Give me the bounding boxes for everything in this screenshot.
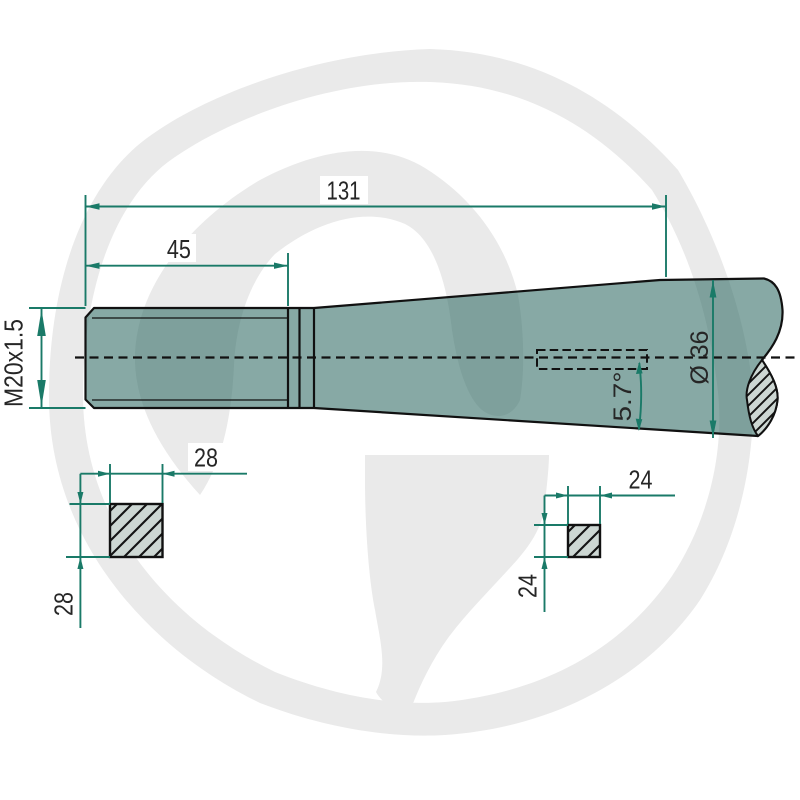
- svg-text:Ø 36: Ø 36: [686, 331, 714, 385]
- svg-text:45: 45: [167, 234, 191, 264]
- svg-text:131: 131: [327, 176, 361, 206]
- svg-text:24: 24: [513, 574, 543, 598]
- svg-text:5.7°: 5.7°: [609, 372, 637, 422]
- svg-text:M20x1.5: M20x1.5: [0, 319, 29, 407]
- svg-text:24: 24: [629, 465, 653, 495]
- svg-text:28: 28: [194, 443, 218, 473]
- svg-text:28: 28: [48, 592, 78, 616]
